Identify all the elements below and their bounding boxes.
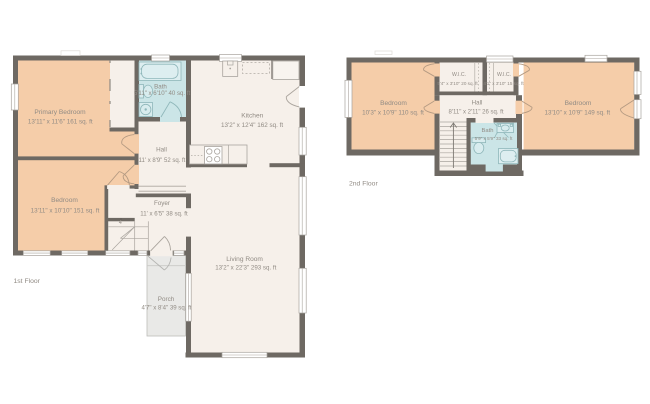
svg-text:10'3" x 10'9" 110 sq. ft: 10'3" x 10'9" 110 sq. ft xyxy=(362,110,424,117)
svg-text:4'1" x 3'10" 15 sq. ft: 4'1" x 3'10" 15 sq. ft xyxy=(483,81,524,86)
svg-text:Bedroom: Bedroom xyxy=(565,100,592,107)
svg-text:W.I.C.: W.I.C. xyxy=(497,72,511,78)
svg-text:13'2" x 12'4" 162 sq. ft: 13'2" x 12'4" 162 sq. ft xyxy=(221,122,283,129)
svg-text:13'10" x 10'9" 149 sq. ft: 13'10" x 10'9" 149 sq. ft xyxy=(544,110,610,117)
svg-text:Kitchen: Kitchen xyxy=(241,113,263,120)
svg-text:13'2" x 22'3" 293 sq. ft: 13'2" x 22'3" 293 sq. ft xyxy=(215,264,276,271)
svg-text:W.I.C.: W.I.C. xyxy=(452,72,466,78)
svg-text:13'11" x 10'10" 151 sq. ft: 13'11" x 10'10" 151 sq. ft xyxy=(31,208,100,215)
svg-text:1st Floor: 1st Floor xyxy=(14,278,41,285)
svg-text:Hall: Hall xyxy=(156,147,167,154)
svg-text:5'4" x 3'10" 20 sq. ft: 5'4" x 3'10" 20 sq. ft xyxy=(437,81,478,86)
svg-text:Bedroom: Bedroom xyxy=(51,197,78,204)
svg-text:Bedroom: Bedroom xyxy=(380,100,407,107)
svg-text:Foyer: Foyer xyxy=(154,200,170,207)
svg-text:5'11" x 6'10" 40 sq. ft: 5'11" x 6'10" 40 sq. ft xyxy=(134,90,191,97)
svg-text:Bath: Bath xyxy=(482,128,494,134)
svg-text:11' x 6'5" 38 sq. ft: 11' x 6'5" 38 sq. ft xyxy=(140,211,188,218)
svg-text:2nd Floor: 2nd Floor xyxy=(349,181,378,188)
svg-text:5'9" x 5'9" 33 sq. ft: 5'9" x 5'9" 33 sq. ft xyxy=(475,136,513,141)
svg-text:8'11" x 2'11" 26 sq. ft: 8'11" x 2'11" 26 sq. ft xyxy=(448,110,503,116)
svg-text:4'7" x 8'4" 39 sq. ft: 4'7" x 8'4" 39 sq. ft xyxy=(141,305,191,312)
svg-text:Living Room: Living Room xyxy=(226,256,263,263)
svg-text:13'11" x 11'6" 161 sq. ft: 13'11" x 11'6" 161 sq. ft xyxy=(28,118,93,125)
svg-text:Porch: Porch xyxy=(158,296,175,303)
svg-text:4: 4 xyxy=(119,220,122,226)
svg-text:Hall: Hall xyxy=(472,100,483,107)
svg-text:11' x 8'9" 52 sq. ft: 11' x 8'9" 52 sq. ft xyxy=(139,158,186,164)
svg-text:Primary Bedroom: Primary Bedroom xyxy=(34,109,86,116)
